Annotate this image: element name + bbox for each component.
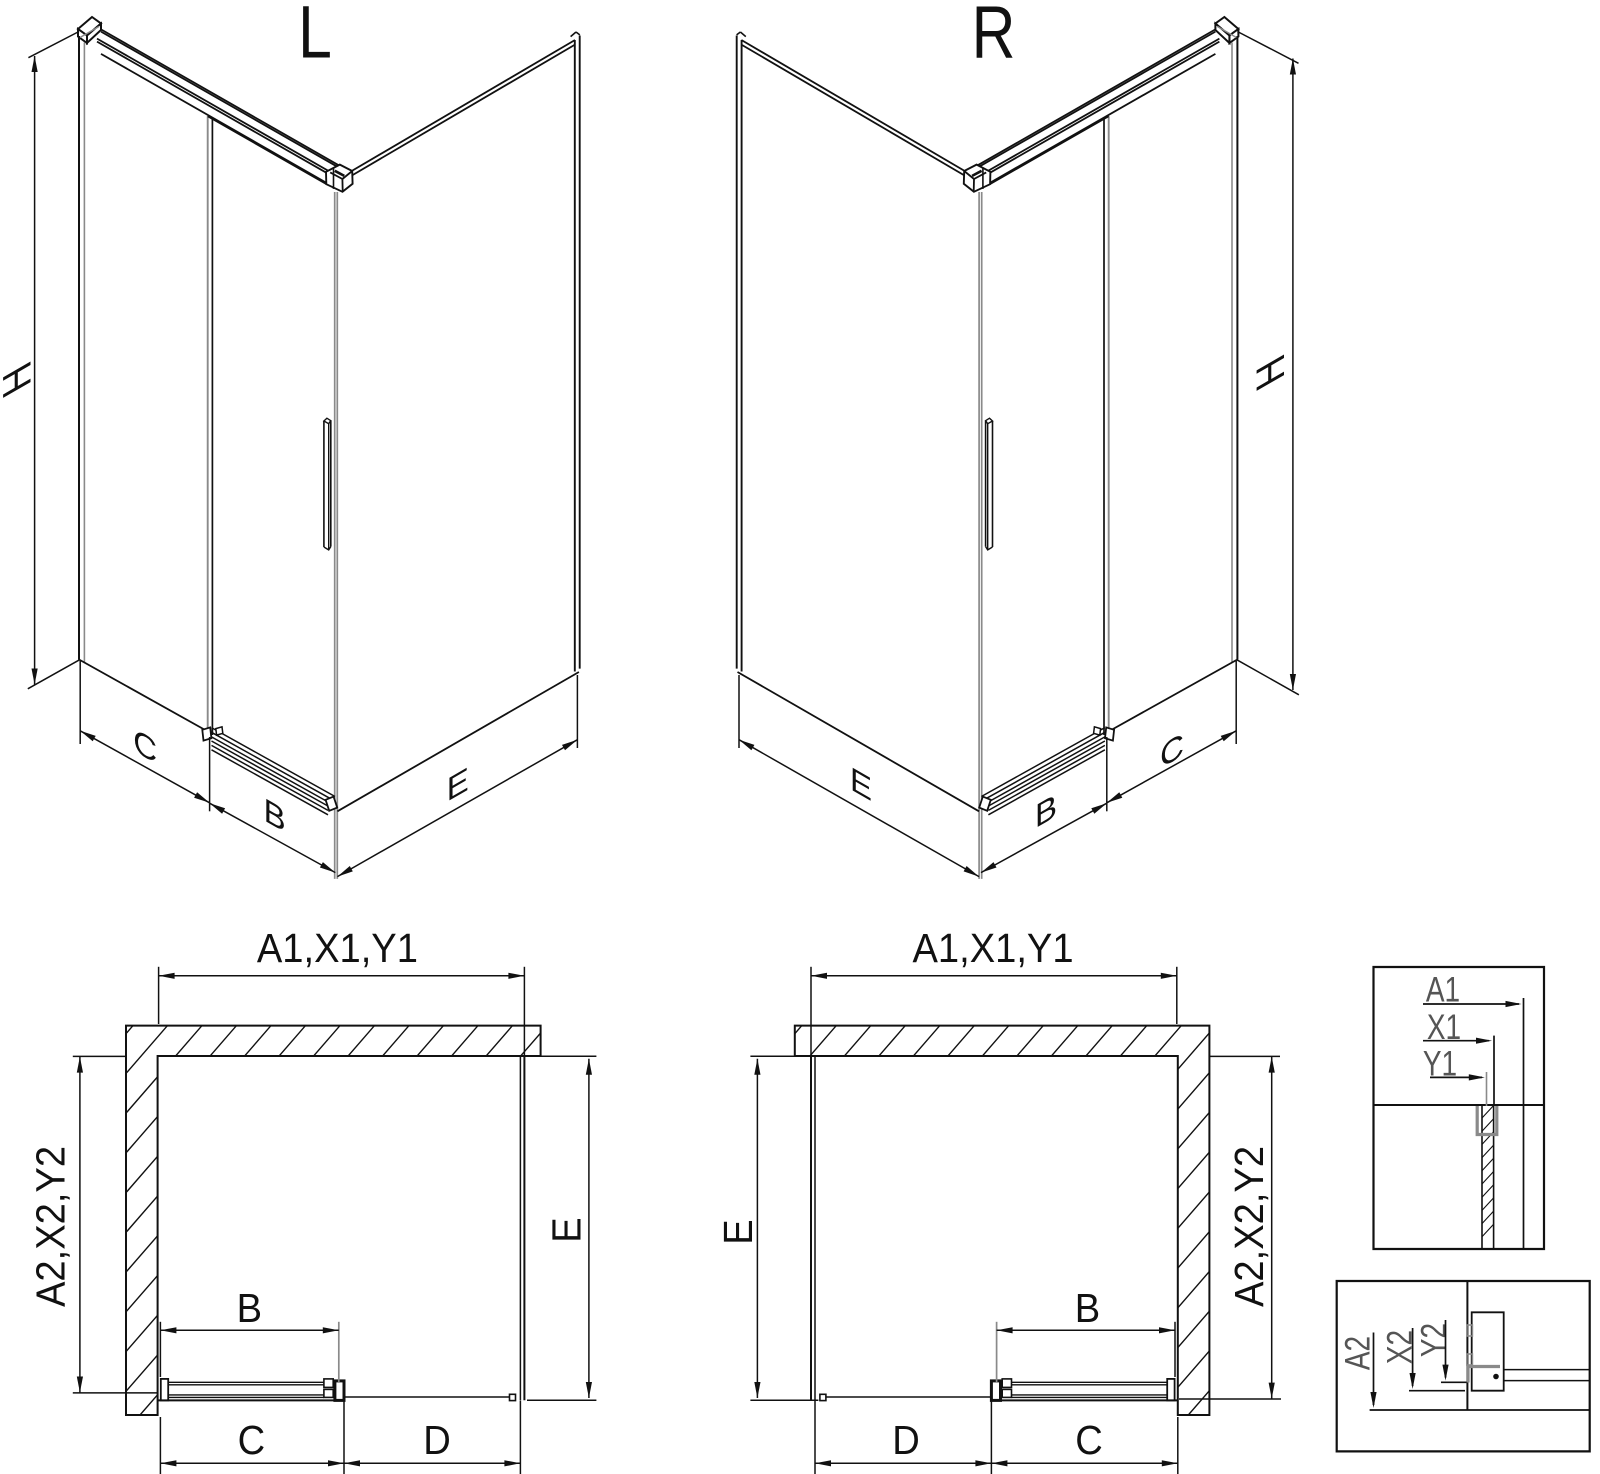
svg-text:A1,X1,Y1: A1,X1,Y1 xyxy=(257,926,418,972)
svg-text:A2,X2,Y2: A2,X2,Y2 xyxy=(1227,1146,1273,1307)
svg-text:E: E xyxy=(544,1217,590,1242)
svg-text:C: C xyxy=(238,1418,266,1464)
svg-text:B: B xyxy=(1075,1286,1100,1332)
svg-text:E: E xyxy=(716,1219,762,1244)
svg-text:A2,X2,Y2: A2,X2,Y2 xyxy=(28,1146,74,1307)
svg-text:D: D xyxy=(892,1418,920,1464)
svg-text:Y2: Y2 xyxy=(1413,1323,1453,1357)
svg-text:A1,X1,Y1: A1,X1,Y1 xyxy=(912,926,1073,972)
svg-text:A2: A2 xyxy=(1337,1336,1377,1370)
svg-text:C: C xyxy=(1075,1418,1103,1464)
svg-text:L: L xyxy=(298,0,332,74)
svg-text:B: B xyxy=(237,1286,262,1332)
svg-text:D: D xyxy=(423,1418,451,1464)
svg-text:R: R xyxy=(972,0,1016,74)
